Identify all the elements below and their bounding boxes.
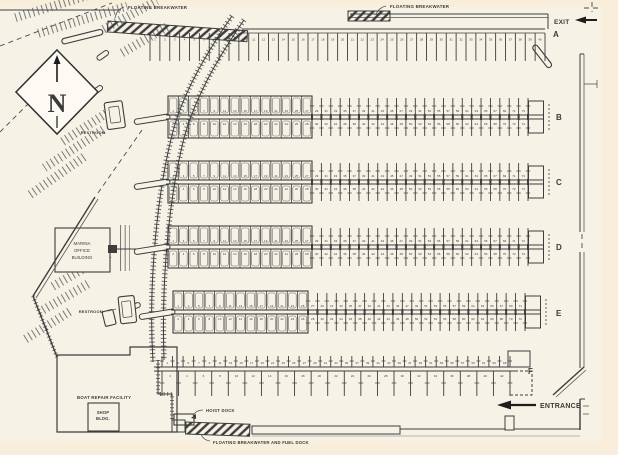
slip-number: 29 <box>315 174 319 178</box>
slip-number: 68 <box>493 252 497 256</box>
dock-post <box>349 114 351 120</box>
slip-number: 35 <box>343 239 347 243</box>
slip-number: 15 <box>249 304 253 308</box>
slip-number: 36 <box>499 38 503 42</box>
slip-number: 51 <box>418 174 422 178</box>
slip-number: 13 <box>272 38 276 42</box>
dock-post <box>386 244 388 250</box>
dock-post <box>439 309 441 315</box>
slip-number: 32 <box>330 317 334 321</box>
slip-number: 17 <box>254 239 258 243</box>
slip-number: 69 <box>509 304 513 308</box>
slip-number: 33 <box>334 361 338 365</box>
dock-label-C: C <box>556 178 562 187</box>
slip-number: 64 <box>481 317 485 321</box>
slip-number: 12 <box>262 38 266 42</box>
slip-number: 60 <box>462 317 466 321</box>
slip-number: 22 <box>361 38 365 42</box>
slip-number: 35 <box>343 174 347 178</box>
slip-number: 24 <box>380 38 384 42</box>
slip-number: 61 <box>465 174 469 178</box>
slip-number: 74 <box>522 252 526 256</box>
slip-number: 20 <box>264 252 268 256</box>
slip-number: 35 <box>349 304 353 308</box>
slip-number: 57 <box>447 109 451 113</box>
slip-number: 27 <box>305 239 309 243</box>
dock-post <box>477 309 479 315</box>
slip-number: 28 <box>305 187 309 191</box>
dock-post <box>405 179 407 185</box>
slip-number: 25 <box>292 361 296 365</box>
slip-number: 55 <box>443 304 447 308</box>
slip-number: 22 <box>274 122 278 126</box>
slip-number: 10 <box>218 317 222 321</box>
slip-number: 33 <box>339 304 343 308</box>
dock-post <box>518 114 520 120</box>
dock-post <box>430 309 432 315</box>
slip-number: 14 <box>233 187 237 191</box>
slip-number: 20 <box>270 317 274 321</box>
slip-number: 45 <box>390 174 394 178</box>
slip-number: 34 <box>334 252 338 256</box>
slip-number: 63 <box>493 361 497 365</box>
slip-number: 71 <box>512 109 516 113</box>
slip-number: 30 <box>401 374 405 378</box>
slip-number: 35 <box>345 361 349 365</box>
slip-number: 28 <box>420 38 424 42</box>
slip-number: 67 <box>500 304 504 308</box>
slip-number: 52 <box>418 252 422 256</box>
slip-number: 51 <box>418 109 422 113</box>
slip-number: 42 <box>371 187 375 191</box>
slip-number: 37 <box>358 304 362 308</box>
office-label-line2: OFFICE <box>74 248 90 253</box>
slip-number: 60 <box>456 187 460 191</box>
slip-number: 37 <box>355 361 359 365</box>
slip-number: 12 <box>223 122 227 126</box>
slip-number: 26 <box>367 374 371 378</box>
dock-post <box>424 114 426 120</box>
dock-post <box>471 244 473 250</box>
dock-post <box>396 179 398 185</box>
dock-post <box>335 309 337 315</box>
slip-number: 62 <box>465 187 469 191</box>
slip-number: 40 <box>362 122 366 126</box>
slip-number: 18 <box>321 38 325 42</box>
dock-post <box>373 309 375 315</box>
slip-number: 35 <box>489 38 493 42</box>
dock-post <box>405 244 407 250</box>
slip-number: 45 <box>396 304 400 308</box>
slip-number: 64 <box>475 122 479 126</box>
slip-number: 70 <box>503 252 507 256</box>
dock-post <box>424 179 426 185</box>
slip-number: 19 <box>261 361 265 365</box>
slip-number: 32 <box>324 122 328 126</box>
slip-number: 32 <box>417 374 421 378</box>
slip-number: 10 <box>235 374 239 378</box>
dock-post <box>489 244 491 250</box>
dock-post <box>392 309 394 315</box>
slip-number: 33 <box>334 239 338 243</box>
entrance-notch <box>505 416 514 430</box>
slip-number: 15 <box>292 38 296 42</box>
slip-number: 29 <box>313 361 317 365</box>
slip-number: 71 <box>512 174 516 178</box>
slip-number: 69 <box>503 239 507 243</box>
dock-post <box>382 309 384 315</box>
slip-number: 21 <box>274 239 278 243</box>
slip-number: 23 <box>285 174 289 178</box>
slip-number: 40 <box>368 317 372 321</box>
dock-post <box>424 244 426 250</box>
slip-number: 40 <box>362 252 366 256</box>
dock-post <box>349 244 351 250</box>
slip-number: 65 <box>490 304 494 308</box>
slip-number: 53 <box>434 304 438 308</box>
dock-post <box>345 309 347 315</box>
dock-post <box>489 179 491 185</box>
dock-post <box>386 114 388 120</box>
slip-number: 17 <box>250 361 254 365</box>
dock-post <box>367 244 369 250</box>
slip-number: 16 <box>243 252 247 256</box>
dock-post <box>508 114 510 120</box>
slip-number: 54 <box>428 252 432 256</box>
slip-number: 51 <box>429 361 433 365</box>
slip-number: 12 <box>251 374 255 378</box>
slip-number: 26 <box>400 38 404 42</box>
slip-number: 26 <box>301 317 305 321</box>
slip-number: 29 <box>320 304 324 308</box>
slip-number: 13 <box>233 109 237 113</box>
slip-number: 17 <box>254 109 258 113</box>
slip-number: 34 <box>434 374 438 378</box>
dock-post <box>449 309 451 315</box>
slip-number: 17 <box>260 304 264 308</box>
dock-post <box>320 244 322 250</box>
slip-number: 71 <box>512 239 516 243</box>
slip-number: 20 <box>318 374 322 378</box>
slip-number: 41 <box>371 174 375 178</box>
slip-number: 38 <box>353 252 357 256</box>
slip-number: 26 <box>295 122 299 126</box>
restroom-upper-building <box>104 100 126 129</box>
dock-label-A: A <box>553 30 559 39</box>
dock-post <box>307 309 309 315</box>
dock-post <box>518 179 520 185</box>
dock-post <box>377 244 379 250</box>
parking-row <box>120 225 130 271</box>
dock-post <box>414 114 416 120</box>
slip-number: 49 <box>409 109 413 113</box>
slip-number: 39 <box>362 174 366 178</box>
slip-number: 17 <box>254 174 258 178</box>
dock-post <box>311 244 313 250</box>
slip-number: 42 <box>371 252 375 256</box>
slip-number: 42 <box>500 374 504 378</box>
dock-post <box>316 309 318 315</box>
slip-number: 17 <box>311 38 315 42</box>
slip-number: 23 <box>371 38 375 42</box>
slip-number: 56 <box>437 122 441 126</box>
slip-number: 49 <box>419 361 423 365</box>
slip-number: 10 <box>242 38 246 42</box>
slip-number: 49 <box>409 174 413 178</box>
slip-number: 31 <box>324 361 328 365</box>
dock-post <box>414 179 416 185</box>
slip-number: 57 <box>447 239 451 243</box>
dock-post <box>505 309 507 315</box>
slip-number: 14 <box>233 122 237 126</box>
slip-number: 67 <box>493 174 497 178</box>
slip-number: 57 <box>447 174 451 178</box>
slip-number: 46 <box>390 122 394 126</box>
slip-number: 31 <box>330 304 334 308</box>
slip-number: 43 <box>381 109 385 113</box>
slip-number: 67 <box>493 109 497 113</box>
breakwater-top-left-label: FLOATING BREAKWATER <box>128 5 188 10</box>
dock-post <box>496 309 498 315</box>
dock-post <box>320 179 322 185</box>
fuel-dock-label: FLOATING BREAKWATER AND FUEL DOCK <box>213 440 309 445</box>
slip-number: 25 <box>295 174 299 178</box>
office-door <box>108 245 117 253</box>
slip-number: 51 <box>418 239 422 243</box>
slip-number: 47 <box>400 239 404 243</box>
slip-number: 24 <box>285 187 289 191</box>
marina-map: N RESTROOM MARINA OFFICE BUILDING RESTRO… <box>0 0 618 455</box>
slip-number: 18 <box>301 374 305 378</box>
slip-number: 59 <box>456 109 460 113</box>
dock-post <box>339 244 341 250</box>
slip-number: 21 <box>274 174 278 178</box>
slip-number: 36 <box>343 187 347 191</box>
slip-number: 25 <box>301 304 305 308</box>
slip-number: 11 <box>229 304 232 308</box>
slip-number: 43 <box>387 304 391 308</box>
dock-post <box>518 244 520 250</box>
slip-number: 33 <box>469 38 473 42</box>
slip-number: 43 <box>387 361 391 365</box>
slip-number: 18 <box>254 122 258 126</box>
slip-number: 34 <box>334 122 338 126</box>
slip-number: 25 <box>390 38 394 42</box>
slip-number: 34 <box>334 187 338 191</box>
breakwater-top-right-label: FLOATING BREAKWATER <box>390 4 450 9</box>
slip-number: 19 <box>264 174 268 178</box>
slip-number: 18 <box>254 252 258 256</box>
shop-label-line2: BLDG. <box>96 416 110 421</box>
slip-number: 19 <box>270 304 274 308</box>
dock-label-E: E <box>556 309 562 318</box>
slip-number: 56 <box>443 317 447 321</box>
slip-number: 44 <box>387 317 391 321</box>
slip-number: 64 <box>475 252 479 256</box>
slip-number: 73 <box>522 174 526 178</box>
slip-number: 72 <box>519 317 523 321</box>
slip-number: 36 <box>343 252 347 256</box>
slip-number: 72 <box>512 252 516 256</box>
slip-number: 70 <box>509 317 513 321</box>
slip-number: 39 <box>362 109 366 113</box>
slip-number: 33 <box>334 174 338 178</box>
slip-number: 65 <box>484 239 488 243</box>
slip-number: 41 <box>371 109 375 113</box>
slip-number: 23 <box>291 304 295 308</box>
slip-number: 47 <box>408 361 412 365</box>
slip-number: 16 <box>285 374 289 378</box>
slip-number: 20 <box>341 38 345 42</box>
dock-post <box>396 244 398 250</box>
slip-number: 15 <box>243 239 247 243</box>
slip-number: 29 <box>315 109 319 113</box>
slip-number: 15 <box>239 361 243 365</box>
dock-post <box>339 179 341 185</box>
boat-repair-facility-label: BOAT REPAIR FACILITY <box>77 395 131 400</box>
slip-number: 39 <box>529 38 533 42</box>
slip-number: 54 <box>428 122 432 126</box>
dock-post <box>364 309 366 315</box>
slip-number: 26 <box>295 187 299 191</box>
slip-number: 49 <box>415 304 419 308</box>
slip-number: 53 <box>428 174 432 178</box>
slip-number: 38 <box>353 122 357 126</box>
slip-number: 57 <box>453 304 457 308</box>
slip-number: 32 <box>459 38 463 42</box>
slip-number: 31 <box>324 109 328 113</box>
slip-number: 26 <box>295 252 299 256</box>
slip-number: 69 <box>503 174 507 178</box>
slip-number: 46 <box>390 252 394 256</box>
slip-number: 66 <box>484 187 488 191</box>
slip-number: 37 <box>353 174 357 178</box>
dock-post <box>508 244 510 250</box>
slip-number: 29 <box>315 239 319 243</box>
dock-post <box>499 114 501 120</box>
slip-number: 53 <box>428 109 432 113</box>
dock-post <box>320 114 322 120</box>
slip-number: 47 <box>400 174 404 178</box>
dock-post <box>471 179 473 185</box>
slip-number: 56 <box>437 187 441 191</box>
dock-post <box>377 179 379 185</box>
slip-number: 51 <box>424 304 428 308</box>
dock-post <box>489 114 491 120</box>
slip-number: 21 <box>351 38 355 42</box>
slip-number: 29 <box>430 38 434 42</box>
slip-number: 72 <box>512 122 516 126</box>
slip-number: 40 <box>483 374 487 378</box>
dock-post <box>508 179 510 185</box>
slip-number: 23 <box>285 109 289 113</box>
slip-number: 19 <box>264 109 268 113</box>
slip-number: 38 <box>353 187 357 191</box>
dock-post <box>515 309 517 315</box>
slip-number: 50 <box>409 187 413 191</box>
slip-number: 48 <box>400 252 404 256</box>
slip-number: 43 <box>381 174 385 178</box>
slip-number: 60 <box>456 252 460 256</box>
slip-number: 66 <box>484 122 488 126</box>
slip-number: 11 <box>223 239 226 243</box>
slip-number: 34 <box>339 317 343 321</box>
dock-label-D: D <box>556 243 562 252</box>
slip-number: 70 <box>503 122 507 126</box>
slip-number: 42 <box>377 317 381 321</box>
slip-number: 11 <box>223 109 226 113</box>
dock-post <box>452 114 454 120</box>
slip-number: 54 <box>434 317 438 321</box>
slip-number: 21 <box>280 304 284 308</box>
restroom-upper-label: RESTROOM <box>81 130 105 135</box>
slip-number: 38 <box>358 317 362 321</box>
slip-number: 27 <box>303 361 307 365</box>
slip-number: 10 <box>213 252 217 256</box>
slip-number: 13 <box>233 239 237 243</box>
dock-post <box>349 179 351 185</box>
slip-number: 44 <box>381 122 385 126</box>
slip-number: 31 <box>324 239 328 243</box>
slip-number: 61 <box>482 361 486 365</box>
slip-number: 36 <box>349 317 353 321</box>
slip-number: 12 <box>223 252 227 256</box>
slip-number: 36 <box>343 122 347 126</box>
slip-number: 68 <box>500 317 504 321</box>
slip-number: 37 <box>353 239 357 243</box>
slip-number: 41 <box>377 304 381 308</box>
office-label-line3: BUILDING <box>72 255 93 260</box>
dock-post <box>354 309 356 315</box>
slip-number: 74 <box>522 122 526 126</box>
slip-number: 33 <box>334 109 338 113</box>
north-label: N <box>48 89 67 118</box>
slip-number: 19 <box>331 38 335 42</box>
slip-number: 37 <box>353 109 357 113</box>
slip-number: 69 <box>503 109 507 113</box>
dock-post <box>420 309 422 315</box>
slip-number: 30 <box>315 252 319 256</box>
dock-post <box>452 179 454 185</box>
slip-number: 11 <box>223 174 226 178</box>
slip-number: 14 <box>282 38 286 42</box>
slip-number: 21 <box>271 361 275 365</box>
slip-number: 37 <box>509 38 513 42</box>
dock-post <box>442 114 444 120</box>
dock-post <box>486 309 488 315</box>
slip-number: 13 <box>233 174 237 178</box>
slip-number: 55 <box>437 174 441 178</box>
dock-post <box>358 244 360 250</box>
slip-number: 53 <box>428 239 432 243</box>
dock-post <box>311 179 313 185</box>
dock-post <box>367 114 369 120</box>
slip-number: 73 <box>522 109 526 113</box>
slip-number: 49 <box>409 239 413 243</box>
slip-number: 14 <box>239 317 243 321</box>
slip-number: 40 <box>362 187 366 191</box>
slip-number: 52 <box>418 187 422 191</box>
slip-number: 60 <box>456 122 460 126</box>
slip-number: 72 <box>512 187 516 191</box>
slip-number: 14 <box>233 252 237 256</box>
slip-number: 38 <box>467 374 471 378</box>
dock-post <box>358 114 360 120</box>
slip-number: 11 <box>252 38 255 42</box>
slip-number: 61 <box>465 239 469 243</box>
slip-number: 61 <box>471 304 475 308</box>
slip-number: 16 <box>243 122 247 126</box>
